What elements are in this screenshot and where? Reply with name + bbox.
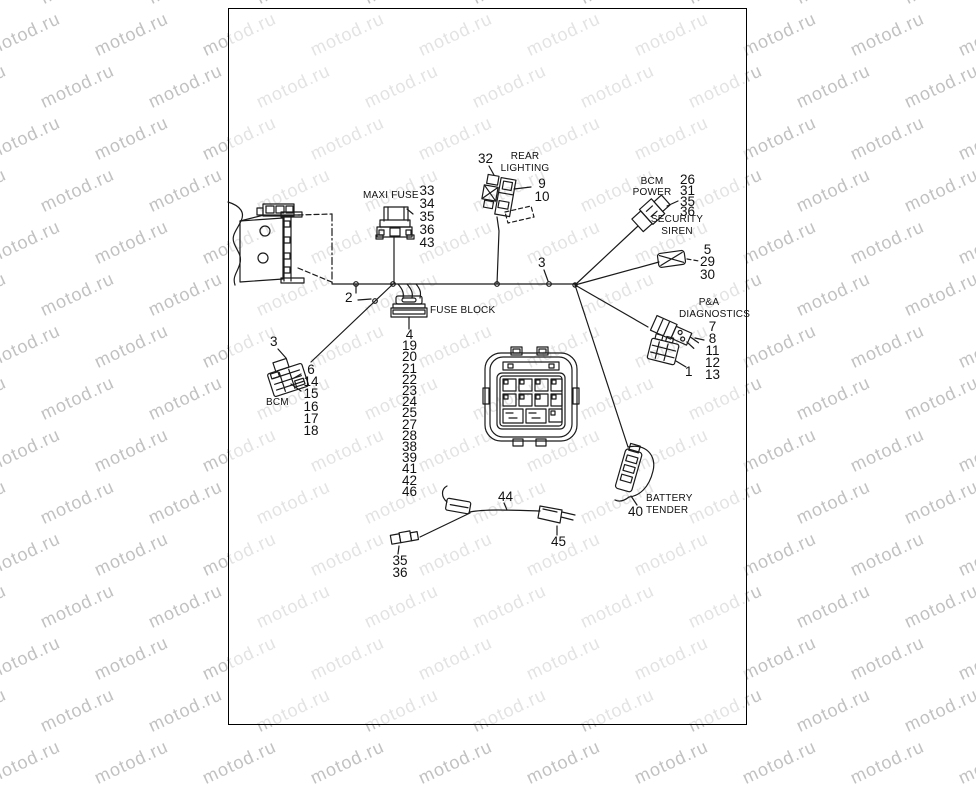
callout: 36	[392, 567, 408, 579]
watermark-text: motod.ru	[91, 8, 172, 60]
watermark-text: motod.ru	[0, 320, 64, 372]
callout: 46	[401, 486, 418, 497]
watermark-text: motod.ru	[37, 60, 118, 112]
watermark-text: motod.ru	[955, 736, 976, 788]
fuse-block-label: FUSE BLOCK	[430, 305, 495, 317]
watermark-text: motod.ru	[847, 736, 928, 788]
watermark-text: motod.ru	[955, 424, 976, 476]
watermark-text: motod.ru	[37, 476, 118, 528]
watermark-text: motod.ru	[0, 372, 10, 424]
watermark-text: motod.ru	[0, 580, 10, 632]
watermark-text: motod.ru	[793, 0, 874, 9]
watermark-text: motod.ru	[901, 476, 976, 528]
watermark-text: motod.ru	[739, 216, 820, 268]
watermark-text: motod.ru	[145, 476, 226, 528]
watermark-text: motod.ru	[0, 736, 64, 788]
watermark-text: motod.ru	[37, 268, 118, 320]
watermark-text: motod.ru	[0, 112, 64, 164]
watermark-text: motod.ru	[37, 684, 118, 736]
watermark-text: motod.ru	[37, 164, 118, 216]
watermark-text: motod.ru	[847, 112, 928, 164]
watermark-text: motod.ru	[91, 112, 172, 164]
jumper-end-callout: 45	[551, 536, 566, 548]
watermark-text: motod.ru	[955, 8, 976, 60]
watermark-text: motod.ru	[145, 164, 226, 216]
callout: 10	[534, 190, 550, 203]
watermark-text: motod.ru	[0, 8, 64, 60]
watermark-text: motod.ru	[91, 320, 172, 372]
watermark-text: motod.ru	[307, 736, 388, 788]
watermark-text: motod.ru	[739, 8, 820, 60]
pa-diagnostics-callouts: 7 8 11 12 13	[705, 321, 720, 381]
bcm-power-callouts: 26 31 35 36	[680, 175, 695, 218]
watermark-text: motod.ru	[145, 580, 226, 632]
watermark-text: motod.ru	[955, 528, 976, 580]
rear-lighting-label: REAR LIGHTING	[494, 151, 556, 175]
bcm-power-label-line2: POWER	[629, 187, 675, 198]
watermark-text: motod.ru	[0, 424, 64, 476]
watermark-text: motod.ru	[145, 372, 226, 424]
security-siren-callouts: 5 29 30	[700, 244, 715, 281]
bcm-point-callout: 3	[270, 336, 278, 348]
watermark-text: motod.ru	[0, 684, 10, 736]
watermark-text: motod.ru	[523, 736, 604, 788]
watermark-text: motod.ru	[901, 372, 976, 424]
security-siren-label-line1: SECURITY	[649, 214, 705, 226]
bcm-power-label: BCM POWER	[629, 176, 675, 198]
security-siren-label-line2: SIREN	[649, 226, 705, 238]
callout: 30	[700, 269, 715, 281]
bcm-power-label-line1: BCM	[629, 176, 675, 187]
callout: 18	[303, 425, 319, 437]
watermark-text: motod.ru	[739, 320, 820, 372]
jumper-wire-callout: 44	[498, 491, 513, 503]
watermark-text: motod.ru	[0, 268, 10, 320]
watermark-text: motod.ru	[145, 268, 226, 320]
watermark-text: motod.ru	[91, 528, 172, 580]
callout: 43	[419, 236, 435, 249]
watermark-text: motod.ru	[901, 684, 976, 736]
watermark-text: motod.ru	[739, 528, 820, 580]
watermark-text: motod.ru	[847, 320, 928, 372]
watermark-text: motod.ru	[847, 216, 928, 268]
watermark-text: motod.ru	[145, 0, 226, 9]
watermark-text: motod.ru	[631, 736, 712, 788]
rear-lighting-callouts: 9 10	[534, 177, 550, 203]
watermark-text: motod.ru	[793, 476, 874, 528]
watermark-text: motod.ru	[901, 0, 976, 9]
watermark-text: motod.ru	[0, 528, 64, 580]
watermark-text: motod.ru	[793, 372, 874, 424]
watermark-text: motod.ru	[901, 164, 976, 216]
fuse-block-callouts: 4 19 20 21 22 23 24 25 27 28 38 39 41 42…	[401, 329, 418, 497]
watermark-text: motod.ru	[91, 736, 172, 788]
rear-lighting-label-line2: LIGHTING	[494, 163, 556, 175]
watermark-text: motod.ru	[0, 0, 10, 9]
pa-diagnostics-label-line1: P&A	[679, 297, 739, 309]
watermark-text: motod.ru	[901, 60, 976, 112]
pa-diagnostics-label: P&A DIAGNOSTICS	[679, 297, 739, 321]
bcm-callouts: 6 14 15 16 17 18	[303, 364, 319, 437]
watermark-text: motod.ru	[955, 320, 976, 372]
watermark-text: motod.ru	[955, 112, 976, 164]
watermark-text: motod.ru	[0, 632, 64, 684]
watermark-text: motod.ru	[37, 372, 118, 424]
watermark-text: motod.ru	[739, 112, 820, 164]
pa-connector-callout: 1	[685, 366, 693, 378]
watermark-text: motod.ru	[145, 684, 226, 736]
watermark-text: motod.ru	[793, 684, 874, 736]
watermark-text: motod.ru	[793, 60, 874, 112]
watermark-text: motod.ru	[793, 164, 874, 216]
security-siren-label: SECURITY SIREN	[649, 214, 705, 238]
watermark-text: motod.ru	[199, 736, 280, 788]
watermark-text: motod.ru	[901, 268, 976, 320]
watermark-text: motod.ru	[0, 60, 10, 112]
watermark-text: motod.ru	[739, 632, 820, 684]
watermark-text: motod.ru	[847, 424, 928, 476]
watermark-text: motod.ru	[739, 424, 820, 476]
watermark-text: motod.ru	[793, 268, 874, 320]
watermark-text: motod.ru	[847, 632, 928, 684]
watermark-text: motod.ru	[793, 580, 874, 632]
watermark-text: motod.ru	[847, 8, 928, 60]
watermark-text: motod.ru	[0, 476, 10, 528]
battery-tender-label: BATTERY TENDER	[646, 493, 690, 516]
battery-tender-label-line2: TENDER	[646, 505, 690, 517]
rear-lighting-label-line1: REAR	[494, 151, 556, 163]
jumper-conn-callouts: 35 36	[392, 555, 408, 578]
battery-tender-label-line1: BATTERY	[646, 493, 690, 505]
watermark-text: motod.ru	[901, 580, 976, 632]
bcm-label: BCM	[266, 397, 289, 409]
maxi-fuse-label: MAXI FUSE	[363, 190, 409, 202]
watermark-text: motod.ru	[955, 632, 976, 684]
maxi-fuse-callouts: 33 34 35 36 43	[419, 184, 435, 249]
harness-clip-callout: 2	[345, 292, 353, 304]
rear-lighting-item-callout: 32	[478, 153, 493, 165]
watermark-text: motod.ru	[91, 216, 172, 268]
watermark-text: motod.ru	[91, 632, 172, 684]
battery-tender-callout: 40	[628, 506, 643, 518]
watermark-text: motod.ru	[0, 164, 10, 216]
watermark-text: motod.ru	[847, 528, 928, 580]
watermark-text: motod.ru	[955, 216, 976, 268]
spine-point-callout: 3	[538, 257, 546, 269]
watermark-text: motod.ru	[739, 736, 820, 788]
watermark-text: motod.ru	[415, 736, 496, 788]
watermark-text: motod.ru	[37, 580, 118, 632]
watermark-text: motod.ru	[37, 0, 118, 9]
watermark-text: motod.ru	[91, 424, 172, 476]
watermark-text: motod.ru	[0, 216, 64, 268]
watermark-text: motod.ru	[145, 60, 226, 112]
callout: 13	[705, 369, 720, 381]
